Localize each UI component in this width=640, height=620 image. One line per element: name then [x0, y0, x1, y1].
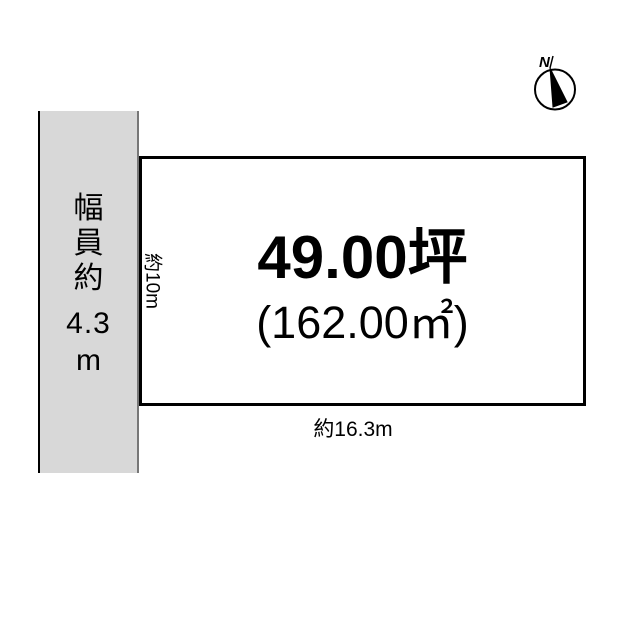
compass-needle [550, 68, 567, 107]
area-tsubo-label: 49.00坪 [257, 225, 467, 291]
road-label-char: 員 [74, 226, 104, 261]
land-plot: 49.00坪 (162.00㎡) [139, 156, 586, 406]
road-label-char: 幅 [74, 191, 104, 226]
area-sqm-label: (162.00㎡) [256, 297, 469, 349]
north-label: N [539, 54, 551, 71]
road-width-value: 4.3 [66, 306, 111, 341]
road-label-char: 約 [74, 261, 104, 296]
road-width-unit: m [76, 343, 101, 378]
road-strip: 幅 員 約 4.3 m [38, 111, 139, 473]
road-width-label: 幅 員 約 4.3 m [66, 191, 111, 378]
frontage-dimension-label: 約16.3m [313, 413, 392, 443]
land-plot-diagram: 幅 員 約 4.3 m 49.00坪 (162.00㎡) 約10m 約16.3m… [0, 0, 640, 620]
north-arrow-icon: N [528, 48, 582, 116]
depth-dimension-label: 約10m [141, 253, 168, 309]
compass-needle-tip [550, 56, 553, 68]
